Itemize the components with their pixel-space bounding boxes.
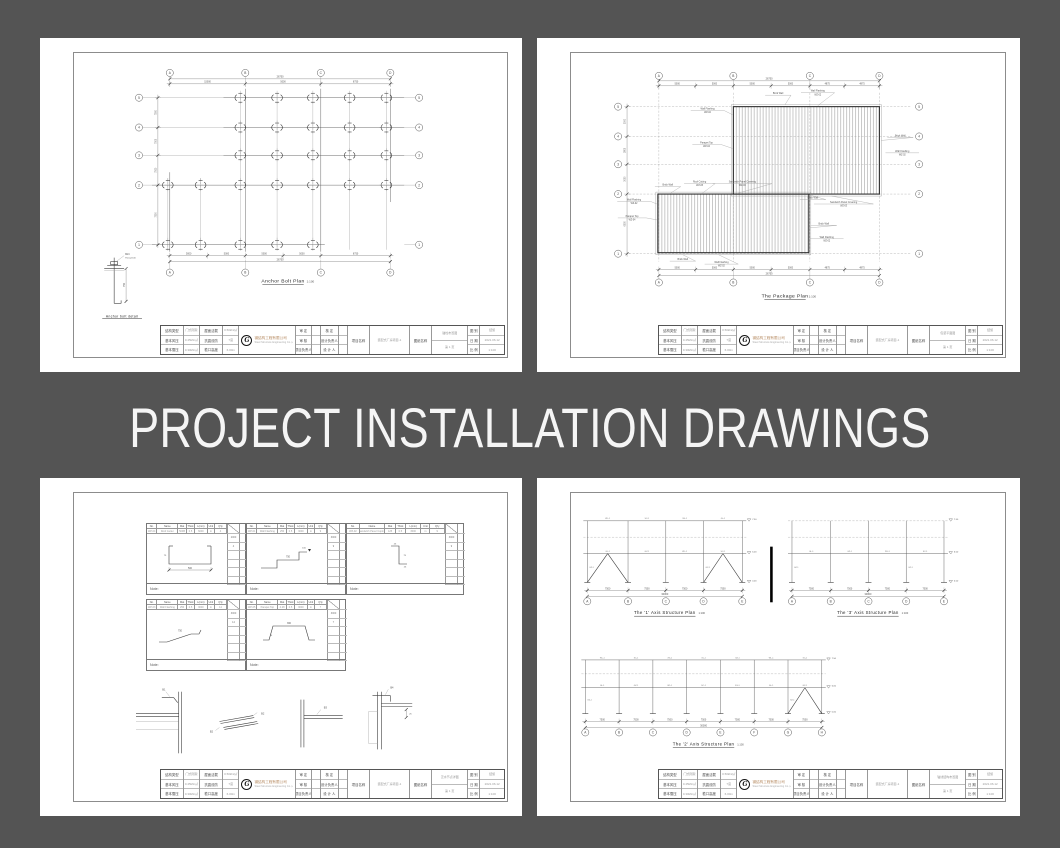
note-label: Note:	[347, 583, 463, 594]
tb-cell: 比 例	[468, 345, 479, 354]
svg-text:WL-1: WL-1	[885, 551, 890, 553]
svg-text:B: B	[244, 71, 246, 75]
tb-cell: 门式刚架	[184, 770, 199, 780]
tb-cell	[339, 770, 347, 780]
tb-column: 图 别日 期比 例	[468, 770, 480, 798]
tb-cell	[339, 345, 347, 354]
note-label: Note:	[147, 583, 245, 594]
svg-text:0.00: 0.00	[832, 712, 837, 714]
tb-column: 核 定设计负责人设 计 人	[321, 326, 339, 354]
sheet-border: ABCDABCD55443322115000500050005000487548…	[570, 52, 1006, 358]
svg-text:Brick Wall: Brick Wall	[773, 92, 784, 95]
svg-text:75: 75	[164, 555, 167, 557]
tb-column: 门式刚架0.45kN/㎡0.30kN/㎡	[682, 326, 698, 354]
tb-cell: 门式刚架	[184, 326, 199, 336]
tb-cell: 门式刚架	[682, 770, 697, 780]
tb-column: 屋面活载抗震设防檐口高度	[698, 326, 721, 354]
tb-cell: 设 计 人	[819, 789, 836, 798]
tb-column: 门式刚架0.45kN/㎡0.30kN/㎡	[682, 770, 698, 798]
tb-column: 结构类型基本风压基本雪压	[161, 326, 184, 354]
svg-text:Brick Wall: Brick Wall	[677, 258, 688, 261]
svg-text:30000: 30000	[700, 724, 707, 727]
svg-text:5000: 5000	[675, 83, 681, 86]
tb-cell: 0.30kN/㎡	[184, 345, 199, 354]
tb-cell: 结施	[480, 770, 504, 780]
svg-text:4: 4	[617, 135, 619, 139]
svg-text:25: 25	[404, 567, 407, 569]
tb-column	[810, 770, 819, 798]
sheet-anchor-bolt-plan: ABCDABCD55443322111500050006750267505000…	[40, 38, 522, 372]
svg-text:7500: 7500	[701, 718, 707, 721]
note-label: Note:	[147, 659, 245, 670]
tb-cell	[810, 326, 818, 336]
svg-text:1:100: 1:100	[902, 611, 909, 615]
svg-text:3000: 3000	[625, 176, 627, 182]
tb-column: 0.50kN/㎡7度6.00m	[223, 770, 239, 798]
company-logo-cell: G钢结构工程有限公司Steel Structure Engineering Co…	[737, 326, 794, 354]
flashing-profile-sketch: 50075	[147, 534, 227, 585]
svg-text:26750: 26750	[277, 259, 284, 262]
tb-column: 图纸名称	[908, 770, 930, 798]
tb-cell: 基本雪压	[659, 345, 681, 354]
tb-cell	[339, 780, 347, 790]
tb-cell: 结构类型	[659, 770, 681, 780]
svg-text:The Package Plan: The Package Plan	[762, 293, 809, 299]
tb-cell: 基本风压	[659, 780, 681, 790]
tb-cell: 2021.06.12	[978, 336, 1002, 346]
tb-cell	[810, 789, 818, 798]
svg-text:1:100: 1:100	[809, 294, 817, 298]
tb-cell: 0.45kN/㎡	[184, 336, 199, 346]
svg-text:WZ-04: WZ-04	[629, 219, 637, 221]
svg-text:SC-1: SC-1	[721, 551, 726, 553]
tb-cell: 屋面活载	[200, 770, 222, 780]
svg-text:GZ-1: GZ-1	[803, 685, 808, 687]
tb-cell: 核 定	[321, 326, 338, 336]
svg-text:1: 1	[138, 243, 140, 247]
svg-text:6750: 6750	[353, 81, 359, 84]
svg-text:GZ-1: GZ-1	[908, 567, 912, 569]
svg-text:Roof Cutting: Roof Cutting	[693, 181, 707, 184]
tb-cell: 0.50kN/㎡	[223, 326, 238, 336]
svg-text:Brick Wall: Brick Wall	[895, 134, 906, 137]
svg-text:WZ-02: WZ-02	[704, 112, 712, 114]
svg-text:5000: 5000	[712, 266, 718, 269]
dimensions: 1500050006750267505000500050005000675026…	[155, 76, 393, 263]
svg-text:6.00: 6.00	[832, 686, 837, 688]
svg-text:4: 4	[418, 126, 420, 130]
svg-text:3: 3	[418, 153, 420, 157]
svg-text:B: B	[627, 599, 629, 603]
tb-cell: 日 期	[468, 336, 479, 346]
tb-column	[339, 770, 348, 798]
svg-text:2: 2	[138, 183, 140, 187]
svg-text:7500: 7500	[720, 587, 726, 590]
tb-cell	[810, 780, 818, 790]
tb-cell: 项目名称	[846, 770, 867, 798]
svg-text:6.00: 6.00	[752, 552, 757, 554]
tb-column: 审 定审 核项目负责人	[296, 770, 312, 798]
svg-text:4875: 4875	[825, 83, 831, 86]
tb-cell: 设 计 人	[321, 789, 338, 798]
tb-column	[339, 326, 348, 354]
tb-column: 项目名称	[846, 770, 868, 798]
tb-cell: 图 别	[966, 326, 977, 336]
tb-column: 审 定审 核项目负责人	[296, 326, 312, 354]
flashing-table: No.WZ-02NameSandwich Panel CopingMat125T…	[346, 523, 464, 595]
tb-column: 门式刚架0.45kN/㎡0.30kN/㎡	[184, 326, 200, 354]
tb-cell: 1:100	[480, 789, 504, 798]
svg-text:Wall Flashing: Wall Flashing	[895, 150, 910, 153]
svg-text:WZ-02: WZ-02	[718, 266, 726, 268]
divider-bar	[770, 547, 773, 603]
svg-text:F: F	[753, 731, 755, 735]
tb-cell: 2021.06.12	[480, 780, 504, 790]
svg-text:7500: 7500	[605, 587, 611, 590]
svg-text:GZ-1: GZ-1	[645, 551, 650, 553]
svg-text:2800: 2800	[625, 147, 627, 153]
svg-text:Sandwich Panel Covering: Sandwich Panel Covering	[729, 181, 757, 184]
svg-text:5: 5	[418, 96, 420, 100]
tb-cell: 审 核	[296, 780, 311, 790]
svg-text:360: 360	[287, 622, 292, 625]
tb-cell: 比 例	[966, 789, 977, 798]
tb-cell: 项目名称	[846, 326, 867, 354]
tb-cell: 抗震设防	[698, 780, 720, 790]
tb-cell: 装配式厂房项目-1	[370, 770, 409, 798]
tb-cell: 6.00m	[223, 345, 238, 354]
svg-text:5000: 5000	[186, 253, 192, 256]
tb-cell	[837, 326, 845, 336]
tb-cell: 设计负责人	[819, 336, 836, 346]
svg-text:B: B	[618, 731, 620, 735]
svg-text:750: 750	[286, 556, 291, 559]
tb-cell: 泛水节点详图	[432, 770, 467, 785]
tb-cell	[837, 789, 845, 798]
anchor-bolt-plan-drawing: ABCDABCD55443322111500050006750267505000…	[74, 53, 507, 357]
tb-cell: 项目负责人	[794, 345, 809, 354]
svg-text:5000: 5000	[788, 266, 794, 269]
tb-column: 锚栓布置图第 1 页	[432, 326, 468, 354]
tb-cell	[810, 345, 818, 354]
svg-text:WZ-03: WZ-03	[840, 206, 848, 208]
svg-text:7500: 7500	[155, 138, 157, 144]
svg-text:Wall Flashing: Wall Flashing	[714, 261, 729, 264]
svg-text:WZ-02: WZ-02	[899, 154, 907, 156]
svg-text:30000: 30000	[865, 593, 872, 596]
svg-text:GZ-1: GZ-1	[634, 685, 639, 687]
svg-text:26750: 26750	[766, 78, 773, 81]
svg-text:5000: 5000	[788, 83, 794, 86]
note-label: Note:	[247, 659, 345, 670]
tb-column: 屋面活载抗震设防檐口高度	[698, 770, 721, 798]
tb-cell: 0.30kN/㎡	[682, 789, 697, 798]
svg-text:26750: 26750	[766, 272, 773, 275]
plan-title: The Package Plan1:100	[762, 293, 817, 299]
svg-text:7500: 7500	[922, 587, 928, 590]
title-block: 结构类型基本风压基本雪压门式刚架0.45kN/㎡0.30kN/㎡屋面活载抗震设防…	[658, 769, 1003, 799]
svg-text:GZ-1: GZ-1	[794, 567, 799, 569]
flashing-table: No.WZ-05NameParapet TopMat4.28Thick0.5L(…	[246, 599, 346, 671]
tb-cell: 1:100	[978, 789, 1002, 798]
svg-text:1: 1	[617, 252, 619, 256]
svg-text:5000: 5000	[675, 266, 681, 269]
svg-text:E: E	[943, 599, 945, 603]
svg-text:M24: M24	[125, 254, 130, 256]
tb-cell	[312, 345, 320, 354]
svg-text:5000: 5000	[712, 83, 718, 86]
svg-text:7500: 7500	[885, 587, 891, 590]
svg-text:1: 1	[918, 252, 920, 256]
tb-cell: 审 定	[794, 326, 809, 336]
svg-text:5000: 5000	[750, 266, 756, 269]
tb-column: 核 定设计负责人设 计 人	[819, 770, 837, 798]
tb-column: 审 定审 核项目负责人	[794, 326, 810, 354]
svg-text:Thread 100: Thread 100	[125, 257, 136, 260]
svg-text:SC-1: SC-1	[634, 657, 639, 659]
frame-axis-1: GL-1WL-1GZ-1SC-1WL-1XG-1SC-1GL-1GZ-1GZ-1…	[583, 518, 757, 616]
tb-cell: 装配式厂房项目-1	[370, 326, 409, 354]
svg-text:Brick Wall: Brick Wall	[819, 222, 830, 225]
tb-cell: 项目负责人	[296, 789, 311, 798]
tb-cell: 项目负责人	[296, 345, 311, 354]
tb-column	[810, 326, 819, 354]
svg-text:XG-1: XG-1	[735, 685, 740, 687]
company-logo-icon: G	[739, 335, 750, 346]
tb-column: 泛水节点详图第 1 页	[432, 770, 468, 798]
svg-text:B: B	[244, 271, 246, 275]
tb-cell: 7度	[223, 336, 238, 346]
svg-text:500: 500	[188, 567, 193, 570]
tb-cell: 结施	[978, 326, 1002, 336]
package-plan-drawing: ABCDABCD55443322115000500050005000487548…	[571, 53, 1005, 357]
svg-text:5: 5	[617, 105, 619, 109]
tb-column: 结构类型基本风压基本雪压	[659, 326, 682, 354]
tb-cell: 2021.06.12	[978, 780, 1002, 790]
svg-text:3000: 3000	[625, 118, 627, 124]
tb-cell: 图 别	[468, 770, 479, 780]
svg-text:The '3' Axis Structure Plan: The '3' Axis Structure Plan	[837, 610, 899, 615]
tb-cell: 0.45kN/㎡	[682, 780, 697, 790]
svg-text:WZ-02: WZ-02	[631, 203, 639, 205]
tb-cell: 0.45kN/㎡	[682, 336, 697, 346]
tb-cell: 设计负责人	[321, 336, 338, 346]
tb-cell: 项目名称	[348, 770, 369, 798]
svg-text:75: 75	[404, 555, 407, 557]
flashing-table: No.WZ-04NameRoof GutterMat500BThick0.5L(…	[146, 523, 246, 595]
svg-text:0.00: 0.00	[954, 580, 959, 582]
svg-text:3: 3	[918, 162, 920, 166]
svg-text:XG-1: XG-1	[682, 518, 687, 520]
tb-cell: 抗震设防	[698, 336, 720, 346]
tb-cell: 审 定	[794, 770, 809, 780]
tb-column: 装配式厂房项目-1	[868, 770, 908, 798]
svg-text:WL-1: WL-1	[769, 657, 774, 659]
tb-cell: 基本风压	[161, 780, 183, 790]
svg-text:7.50: 7.50	[954, 519, 959, 521]
tb-cell: 7度	[721, 780, 736, 790]
tb-column: 0.50kN/㎡7度6.00m	[223, 326, 239, 354]
tb-cell	[312, 770, 320, 780]
tb-cell	[339, 326, 347, 336]
tb-cell: 结施	[480, 326, 504, 336]
tb-cell: 基本风压	[659, 336, 681, 346]
tb-cell: 结构类型	[161, 770, 183, 780]
svg-text:Anchor bolt detail: Anchor bolt detail	[106, 314, 138, 318]
svg-text:Brick Wall: Brick Wall	[663, 184, 674, 187]
svg-text:XG-1: XG-1	[667, 657, 672, 659]
svg-text:25: 25	[394, 544, 397, 546]
tb-cell: 0.45kN/㎡	[184, 780, 199, 790]
tb-cell: 装配式厂房项目-1	[868, 326, 907, 354]
svg-text:5000: 5000	[750, 83, 756, 86]
svg-text:Parapet Top: Parapet Top	[626, 215, 639, 218]
svg-text:5: 5	[918, 105, 920, 109]
svg-text:The '2' Axis Structure Plan: The '2' Axis Structure Plan	[673, 741, 735, 746]
flashing-profile-sketch: 750100	[247, 534, 327, 585]
svg-text:7.50: 7.50	[752, 519, 757, 521]
tb-cell: 比 例	[468, 789, 479, 798]
tb-column: 屋面活载抗震设防檐口高度	[200, 326, 223, 354]
svg-text:GZ-1: GZ-1	[847, 551, 852, 553]
svg-text:15000: 15000	[204, 81, 211, 84]
structure-plans-drawing: GL-1WL-1GZ-1SC-1WL-1XG-1SC-1GL-1GZ-1GZ-1…	[571, 493, 1005, 801]
svg-text:E: E	[719, 731, 721, 735]
tb-cell: 图 别	[966, 770, 977, 780]
svg-text:Wall Flashing: Wall Flashing	[627, 199, 642, 202]
svg-text:SC-1: SC-1	[645, 518, 650, 520]
svg-text:GZ-1: GZ-1	[587, 700, 592, 702]
title-block: 结构类型基本风压基本雪压门式刚架0.45kN/㎡0.30kN/㎡屋面活载抗震设防…	[658, 325, 1003, 355]
banner: PROJECT INSTALLATION DRAWINGS	[0, 376, 1060, 478]
tb-cell: 设 计 人	[819, 345, 836, 354]
tb-column: 结施2021.06.121:100	[978, 770, 1002, 798]
tb-cell: 审 核	[794, 780, 809, 790]
svg-text:WZ-02: WZ-02	[814, 94, 822, 96]
svg-text:WL-1: WL-1	[605, 518, 610, 520]
tb-column: 项目名称	[348, 770, 370, 798]
tb-column	[837, 770, 846, 798]
tb-column: 结施2021.06.121:100	[978, 326, 1002, 354]
note-label: Note:	[247, 583, 345, 594]
frame-axis-3: GL-1GZ-1WL-1SC-1GZ-1GZ-17.506.000.007500…	[788, 519, 959, 616]
tb-cell: 图 别	[468, 326, 479, 336]
svg-text:WL-1: WL-1	[667, 685, 672, 687]
sheet-package-plan: ABCDABCD55443322115000500050005000487548…	[537, 38, 1020, 372]
tb-cell: 日 期	[468, 780, 479, 790]
company-logo-cell: G钢结构工程有限公司Steel Structure Engineering Co…	[239, 770, 296, 798]
svg-text:2: 2	[918, 192, 920, 196]
svg-text:6750: 6750	[353, 253, 359, 256]
svg-text:GZ-1: GZ-1	[589, 567, 594, 569]
svg-text:B: B	[732, 74, 734, 78]
svg-text:6000: 6000	[625, 221, 627, 227]
svg-text:WZ-05: WZ-05	[696, 185, 704, 187]
svg-text:750: 750	[123, 282, 126, 287]
tb-cell: 0.50kN/㎡	[721, 770, 736, 780]
tb-cell	[312, 336, 320, 346]
tb-column: 项目名称	[348, 326, 370, 354]
svg-text:30000: 30000	[661, 593, 668, 596]
tb-cell	[810, 770, 818, 780]
tb-cell: 核 定	[321, 770, 338, 780]
tb-cell: 1:100	[978, 345, 1002, 354]
tb-column: 图纸名称	[908, 326, 930, 354]
tb-cell: 核 定	[819, 770, 836, 780]
tb-cell: 屋面活载	[200, 326, 222, 336]
svg-text:WL-1: WL-1	[682, 551, 687, 553]
svg-text:GL-1: GL-1	[809, 551, 813, 553]
tb-cell: 第 1 页	[432, 785, 467, 799]
svg-text:GL-1: GL-1	[721, 518, 725, 520]
tb-cell: 2021.06.12	[480, 336, 504, 346]
svg-text:100: 100	[302, 548, 306, 550]
svg-text:GL-1: GL-1	[600, 685, 604, 687]
tb-cell: 比 例	[966, 345, 977, 354]
package-rects	[656, 105, 882, 255]
svg-text:E: E	[741, 599, 743, 603]
tb-cell: 图纸名称	[908, 770, 929, 798]
svg-text:7500: 7500	[155, 109, 157, 115]
tb-cell: 设计负责人	[819, 780, 836, 790]
svg-text:B: B	[732, 281, 734, 285]
tb-cell	[312, 789, 320, 798]
detail-tables: No.WZ-04NameRoof GutterMat500BThick0.5L(…	[74, 493, 507, 801]
svg-text:7500: 7500	[633, 718, 639, 721]
tb-cell: 设计负责人	[321, 780, 338, 790]
tb-cell: 第 1 页	[930, 785, 965, 799]
tb-cell	[339, 789, 347, 798]
tb-column: 包装平面图第 1 页	[930, 326, 966, 354]
tb-cell: 图纸名称	[908, 326, 929, 354]
tb-cell: 结构类型	[659, 326, 681, 336]
svg-text:7500: 7500	[735, 718, 741, 721]
svg-text:7500: 7500	[600, 718, 606, 721]
company-logo-icon: G	[241, 335, 252, 346]
tb-cell: 6.00m	[223, 789, 238, 798]
sheet-border: B1B2B2B3B425 No.WZ-04NameRoof GutterMat5…	[73, 492, 508, 802]
svg-text:7500: 7500	[768, 718, 774, 721]
svg-text:5000: 5000	[280, 81, 286, 84]
tb-cell: 包装平面图	[930, 326, 965, 341]
tb-cell: 审 核	[296, 336, 311, 346]
tb-cell: 日 期	[966, 780, 977, 790]
tb-column	[312, 326, 321, 354]
tb-cell: 基本雪压	[161, 345, 183, 354]
svg-text:Anchor Bolt Plan: Anchor Bolt Plan	[261, 278, 304, 284]
svg-text:4875: 4875	[859, 83, 865, 86]
tb-cell: 檐口高度	[698, 345, 720, 354]
tb-column: 核 定设计负责人设 计 人	[321, 770, 339, 798]
svg-text:7500: 7500	[847, 587, 853, 590]
svg-text:GL-1: GL-1	[701, 657, 705, 659]
tb-cell: 6.00m	[721, 345, 736, 354]
svg-text:2: 2	[617, 192, 619, 196]
svg-text:B: B	[830, 599, 832, 603]
tb-cell: 7度	[223, 780, 238, 790]
tb-cell: 6.00m	[721, 789, 736, 798]
svg-text:WZ-03: WZ-03	[739, 185, 747, 187]
svg-text:5000: 5000	[224, 253, 230, 256]
tb-cell: 屋面活载	[698, 770, 720, 780]
svg-text:0.00: 0.00	[752, 580, 757, 582]
company-logo-icon: G	[739, 779, 750, 790]
svg-text:1:100: 1:100	[698, 611, 705, 615]
tb-column: 结施2021.06.121:100	[480, 770, 504, 798]
tb-column: 图 别日 期比 例	[468, 326, 480, 354]
sheet-border: GL-1WL-1GZ-1SC-1WL-1XG-1SC-1GL-1GZ-1GZ-1…	[570, 492, 1006, 802]
flashing-profile-sketch: 750	[147, 610, 227, 661]
